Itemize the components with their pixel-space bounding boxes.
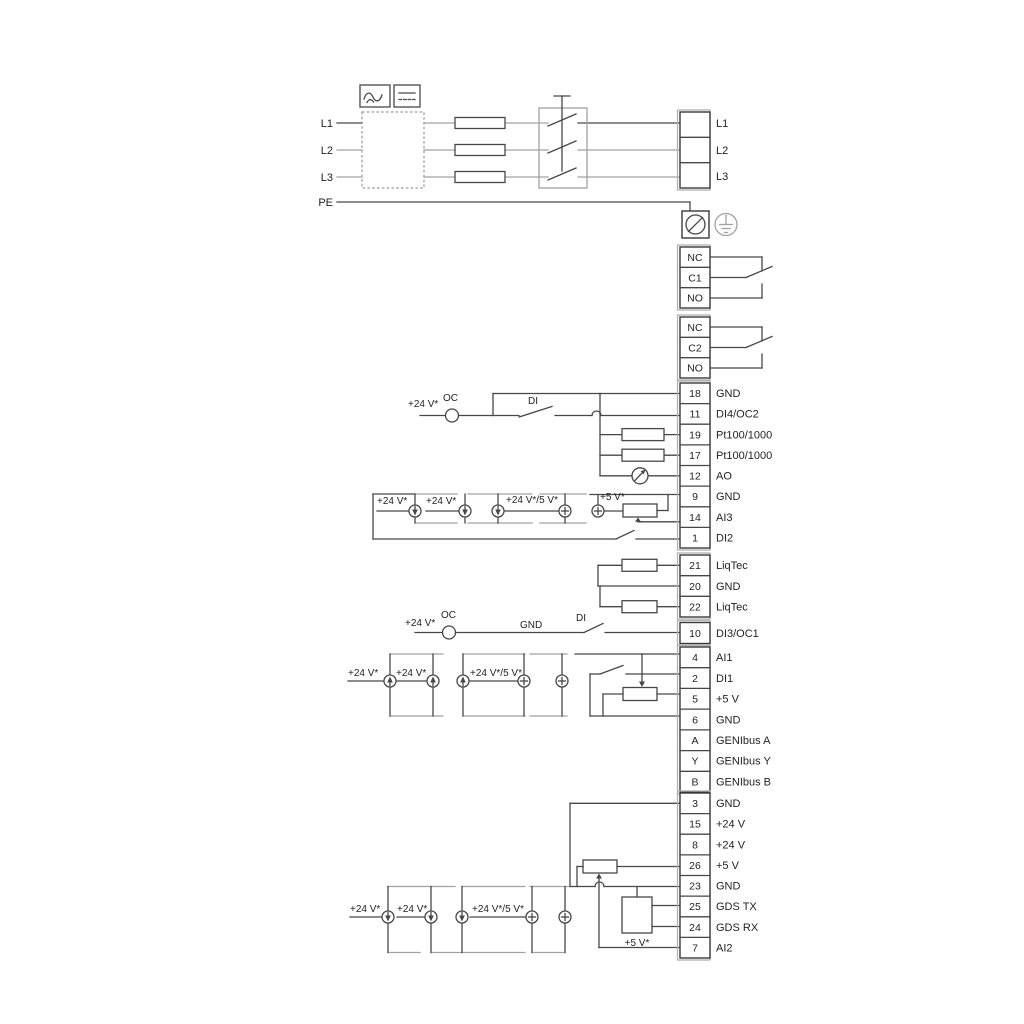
earth-ground-icon [715,214,737,236]
analog-output-meter-icon [632,468,648,484]
terminal-number: 15 [689,819,701,831]
voltage-source-icon [526,911,538,923]
pe-screw-terminal-icon [682,211,709,238]
terminal-label: LiqTec [716,601,748,613]
relay1-block: NC C1 NO [678,245,773,310]
current-source-icon [457,675,469,687]
phase-label-l1-out: L1 [716,118,728,130]
terminal-label: GND [716,881,741,893]
v24-label: +24 V* [348,668,378,679]
gnd-label: GND [520,620,542,631]
terminal-number: Y [691,756,698,768]
voltage-source-icon [592,505,604,517]
terminal-label: DI4/OC2 [716,409,759,421]
terminal-number: 9 [692,491,698,503]
pt100-sensor-icon [622,449,664,461]
v24-label: +24 V* [377,496,407,507]
v24-label: +24 V* [405,618,435,629]
power-input-section: L1 L2 L3 PE L1 L2 L3 [318,85,737,238]
di-switch-icon [519,407,552,418]
phase-label-l2-in: L2 [321,145,333,157]
current-source-icon [384,675,396,687]
di-switch-icon [616,531,634,540]
terminal-number: 5 [692,694,698,706]
ai2-gds-wiring: +24 V* +24 V* +24 V*/5 V* +5 V* [350,803,680,952]
phase-label-l3-in: L3 [321,172,333,184]
phase-label-l2-out: L2 [716,145,728,157]
terminal-number: 22 [689,601,701,613]
terminal-number: 4 [692,652,698,664]
terminal-number: 8 [692,839,698,851]
terminal-number: 2 [692,673,698,685]
terminal-label: GND [716,388,741,400]
terminal-number: 11 [690,409,701,421]
mains-terminal-block [678,110,711,190]
terminal-label: GND [716,714,741,726]
terminal-label: AI2 [716,943,733,955]
dc-symbol-icon [394,85,420,107]
terminal-number: 14 [689,512,701,524]
oc-label: OC [443,393,458,404]
terminal-label: AI1 [716,652,733,664]
v5-label: +5 V* [600,492,625,503]
voltage-source-icon [556,675,568,687]
gds-sensor-icon [622,887,680,934]
current-source-icon [456,911,468,923]
current-source-icon [492,505,504,517]
terminal-number: B [691,777,698,789]
relay2-block: NC C2 NO [678,315,773,380]
terminal-label: +24 V [716,819,746,831]
terminal-number: A [691,735,698,747]
relay1-nc: NC [687,252,703,264]
terminal-label: DI2 [716,533,733,545]
terminal-label: GDS TX [716,901,757,913]
v24-label: +24 V* [396,668,426,679]
ac-symbol-icon [360,85,390,107]
v24-label: +24 V* [397,904,427,915]
relay2-no: NO [687,363,703,375]
current-source-icon [382,911,394,923]
terminal-number: 25 [689,901,701,913]
phase-label-l1-in: L1 [321,118,333,130]
terminal-number: 19 [689,429,701,441]
v24-5v-label: +24 V*/5 V* [472,904,524,915]
di-label: DI [528,396,538,407]
terminal-number: 1 [692,533,698,545]
terminal-number: 20 [689,581,701,593]
terminal-label: DI3/OC1 [716,628,759,640]
liqtec-sensor-icon [622,559,657,571]
filter-box [362,112,424,188]
phase-label-pe: PE [318,197,333,209]
ai3-wiring: +24 V* +24 V* +24 V*/5 V* +5 V* [373,492,680,539]
terminal-label: Pt100/1000 [716,450,772,462]
terminal-label: GENIbus A [716,735,771,747]
terminal-number: 3 [692,798,698,810]
terminal-label: GND [716,491,741,503]
liqtec-terminal-strip: 21 20 22 LiqTec GND LiqTec [598,553,748,619]
terminal-number: 21 [689,560,701,572]
mid-terminal-strip: 4 2 5 6 A Y B AI1 DI1 +5 V GND GENIbus A… [678,645,772,794]
v24-label: +24 V* [408,399,438,410]
current-source-icon [427,675,439,687]
di-switch-icon [600,666,623,675]
terminal-label: GENIbus Y [716,756,771,768]
current-source-icon [459,505,471,517]
voltage-source-icon [559,505,571,517]
relay2-c2: C2 [688,342,702,354]
open-collector-icon [443,626,456,639]
terminal-number: 12 [689,471,701,483]
io-terminal-strip: 18 11 19 17 12 9 14 1 GND DI4/OC2 Pt100/… [678,381,773,550]
relay1-no: NO [687,293,703,305]
fuse-icon [455,118,505,183]
bottom-terminal-strip: 3 15 8 26 23 25 24 7 GND +24 V +24 V +5 … [678,791,759,960]
di-switch-icon [584,624,603,633]
terminal-label: +5 V [716,860,740,872]
terminal-label: +24 V [716,839,746,851]
relay2-nc: NC [687,322,703,334]
terminal-number: 7 [692,943,698,955]
pt100-sensor-icon [622,429,664,441]
voltage-source-icon [559,911,571,923]
di4-oc2-wiring: +24 V* OC DI [408,393,680,484]
liqtec-sensor-icon [622,601,657,613]
phase-label-l3-out: L3 [716,171,728,183]
terminal-number: 23 [689,881,701,893]
v5-label: +5 V* [625,938,650,949]
terminal-label: AI3 [716,512,733,524]
potentiometer-icon [603,688,680,717]
v24-5v-label: +24 V*/5 V* [470,668,522,679]
terminal-number: 26 [689,860,701,872]
terminal-label: DI1 [716,673,733,685]
terminal-label: GDS RX [716,922,759,934]
v24-label: +24 V* [426,496,456,507]
open-collector-icon [446,409,459,422]
ai1-di1-wiring: +24 V* +24 V* +24 V*/5 V* [348,654,680,716]
terminal-label: +5 V [716,694,740,706]
v24-label: +24 V* [350,904,380,915]
terminal-number: 18 [689,388,701,400]
terminal-label: AO [716,471,732,483]
terminal-number: 10 [689,628,701,640]
terminal-number: 24 [689,922,701,934]
terminal-number: 17 [689,450,701,462]
terminal-number: 6 [692,714,698,726]
terminal-label: LiqTec [716,560,748,572]
terminal-label: GND [716,798,741,810]
current-source-icon [409,505,421,517]
v24-5v-label: +24 V*/5 V* [506,495,558,506]
di-label: DI [576,613,586,624]
wiring-diagram-page: L1 L2 L3 PE L1 L2 L3 NC C1 NO NC C2 [0,0,1024,1024]
wiring-diagram: L1 L2 L3 PE L1 L2 L3 NC C1 NO NC C2 [0,0,1024,1024]
terminal-label: GND [716,581,741,593]
relay1-c1: C1 [688,272,702,284]
disconnect-switch-icon [539,96,587,188]
terminal-label: GENIbus B [716,777,771,789]
terminal-label: Pt100/1000 [716,429,772,441]
oc-label: OC [441,610,456,621]
potentiometer-icon [623,495,680,522]
